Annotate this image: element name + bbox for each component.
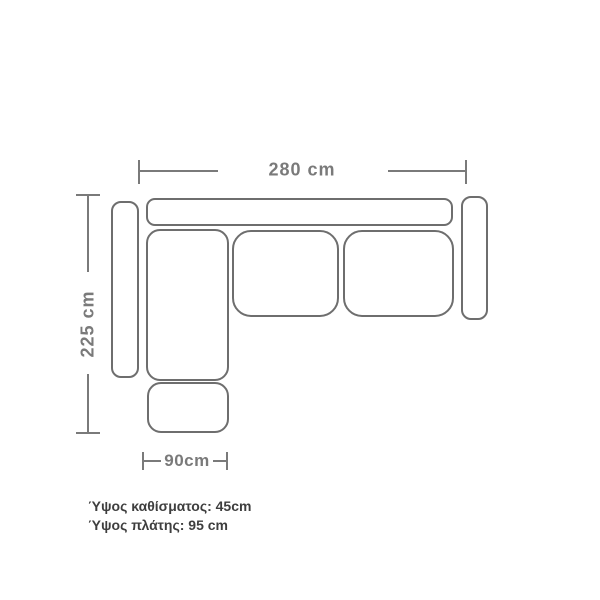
back-height-note: Ύψος πλάτης: 95 cm bbox=[88, 516, 251, 535]
right-seat-cushion bbox=[344, 231, 453, 316]
width-dimension-label: 280 cm bbox=[268, 160, 335, 181]
right-armrest bbox=[462, 197, 487, 319]
height-notes: Ύψος καθίσματος: 45cm Ύψος πλάτης: 95 cm bbox=[88, 497, 251, 535]
backrest bbox=[147, 199, 452, 225]
ottoman bbox=[148, 383, 228, 432]
middle-seat-cushion bbox=[233, 231, 338, 316]
sofa-dimension-diagram: 280 cm 225 cm 90cm Ύψος καθίσματος: 45cm… bbox=[0, 0, 600, 600]
depth-dimension-label: 225 cm bbox=[78, 290, 99, 357]
ottoman-width-dimension-label: 90cm bbox=[164, 451, 209, 471]
seat-height-note: Ύψος καθίσματος: 45cm bbox=[88, 497, 251, 516]
sofa-parts bbox=[112, 197, 487, 432]
chaise-seat-cushion bbox=[147, 230, 228, 380]
left-armrest bbox=[112, 202, 138, 377]
